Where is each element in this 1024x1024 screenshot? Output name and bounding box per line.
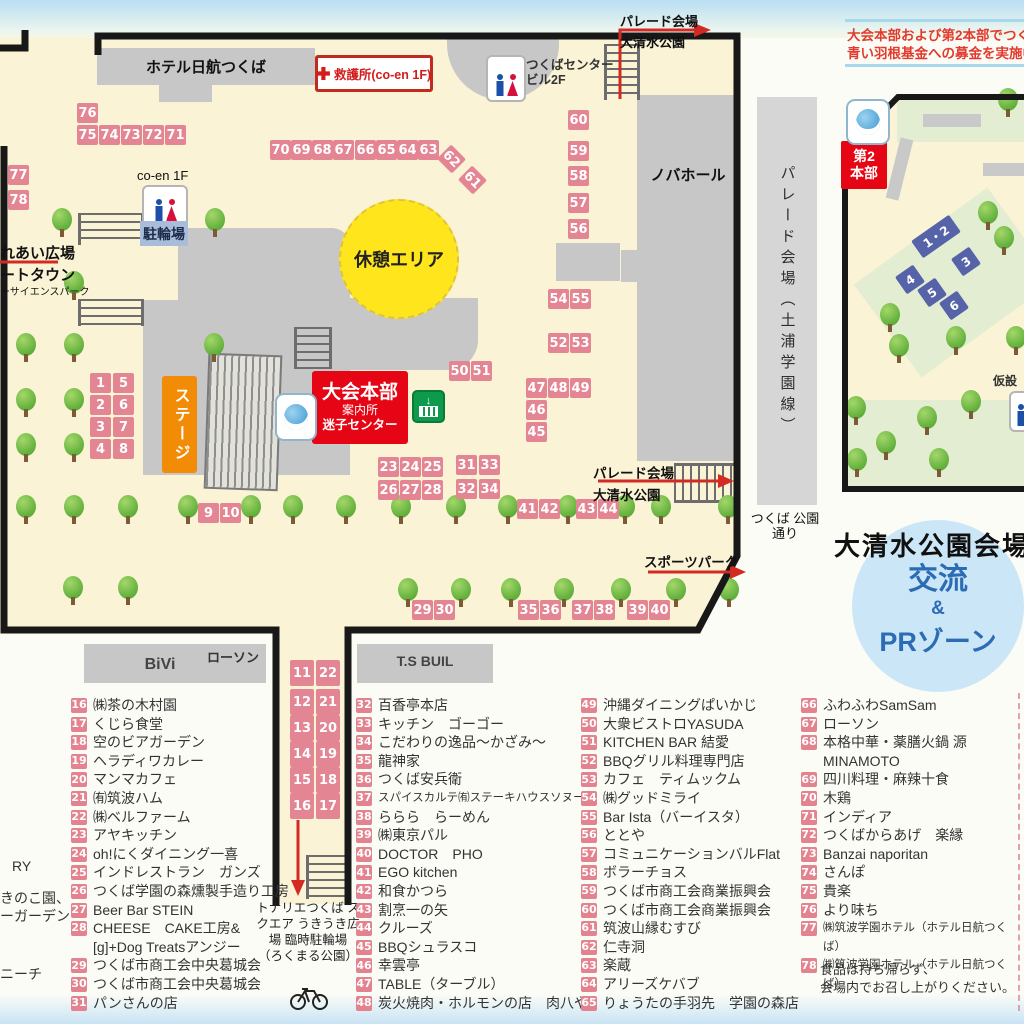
legend-item-name: 和食かつら (378, 882, 448, 901)
legend-item-number: 37 (356, 791, 372, 806)
legend-item-name: ボラーチョス (603, 863, 687, 882)
legend-item-name: りょうたの手羽先 学園の森店 (603, 994, 799, 1013)
lost-child-center-label: 迷子センター (322, 418, 397, 432)
booth-70: 70 (270, 140, 291, 160)
legend-item: 37スパイスカルテ㈲ステーキハウスソヌーテ (356, 789, 596, 808)
legend-item-number: 47 (356, 977, 372, 992)
legend-item-name: 百香亭本店 (378, 696, 448, 715)
booth-64: 64 (397, 140, 418, 160)
legend-item-name: ㈱茶の木村園 (93, 696, 177, 715)
note-rule (845, 64, 1024, 67)
legend-item-name: 仁寺洞 (603, 938, 645, 957)
legend-item-number: 22 (71, 810, 87, 825)
legend-item: 38ららら らーめん (356, 808, 596, 827)
legend-item-number: 65 (581, 996, 597, 1011)
legend-item: 77㈱筑波学園ホテル（ホテル日航つくば） (801, 919, 1024, 956)
booth-42: 42 (539, 499, 560, 519)
legend-item-name: つくば市商工会中央葛城会 (93, 956, 261, 975)
booth-10: 10 (220, 503, 241, 523)
legend-item-name: ㈱グッドミライ (603, 789, 701, 808)
legend-item: 66ふわふわSamSam (801, 696, 1024, 715)
booth-48: 48 (548, 378, 569, 398)
legend-item-number: 38 (356, 810, 372, 825)
booth-56: 56 (568, 219, 589, 239)
booth-28: 28 (422, 480, 443, 500)
booth-39: 39 (627, 600, 648, 620)
rest-area: 休憩エリア (339, 199, 459, 319)
oshimizu-venue-title: 大清水公園会場 (834, 526, 1024, 563)
booth-76: 76 (77, 103, 98, 123)
booth-55: 55 (570, 289, 591, 309)
legend-item-number: 68 (801, 735, 817, 750)
legend-item-name: アヤキッチン (93, 826, 177, 845)
down-arrow-icon: ↓ (426, 396, 432, 406)
legend-item-number: 50 (581, 717, 597, 732)
booth-67: 67 (333, 140, 354, 160)
legend-item-number: 49 (581, 698, 597, 713)
hotel-label: ホテル日航つくば (97, 56, 315, 77)
tree-icon (719, 578, 739, 607)
booth-73: 73 (121, 125, 142, 145)
tree-icon (64, 388, 84, 417)
tree-icon (917, 406, 937, 435)
legend-item-name: ㈱ベルファーム (93, 808, 191, 827)
legend-item: 25インドレストラン ガンズ (71, 863, 289, 882)
science-park-label: ーサイエンスパーク (0, 283, 90, 298)
booth-12: 12 (290, 689, 314, 715)
legend-item-number: 63 (581, 958, 597, 973)
lawson-map-label: ローソン (207, 647, 259, 666)
booth-29: 29 (412, 600, 433, 620)
mascot-icon (275, 393, 317, 441)
legend-item-name: ふわふわSamSam (823, 696, 937, 715)
sports-park-label: スポーツパーク (644, 551, 738, 571)
legend-item-name: つくば学園の森燻製手造り工房 (93, 882, 289, 901)
booth-63: 63 (418, 140, 439, 160)
legend-item: 59つくば市商工会商業振興会 (581, 882, 799, 901)
stairs-icon (294, 327, 332, 369)
mascot-icon (846, 99, 890, 145)
booth-20: 20 (316, 715, 340, 741)
oshimizu-park-label: 大清水公園 (620, 32, 685, 51)
legend-item: 30つくば市商工会中央葛城会 (71, 975, 289, 994)
booth-9: 9 (198, 503, 219, 523)
legend-item: 44クルーズ (356, 919, 596, 938)
tree-icon (205, 208, 225, 237)
legend-item: 64アリーズケバブ (581, 975, 799, 994)
small-building (556, 243, 620, 281)
booth-46: 46 (526, 400, 547, 420)
legend-item-number: 73 (801, 847, 817, 862)
legend-item: 62仁寺洞 (581, 938, 799, 957)
legend-item-number: 69 (801, 772, 817, 787)
donation-note-line1: 大会本部および第2本部でつく (847, 24, 1024, 44)
hq-info-label: 案内所 (342, 404, 378, 418)
novahall-building (637, 95, 737, 461)
legend-item-number: 71 (801, 810, 817, 825)
toilet-icon (1009, 391, 1024, 432)
legend-item: 16㈱茶の木村園 (71, 696, 289, 715)
legend-column: 66ふわふわSamSam67ローソン68本格中華・薬膳火鍋 源MINAMOTO6… (801, 696, 1024, 994)
tree-icon (558, 495, 578, 524)
tree-icon (946, 326, 966, 355)
legend-item: 42和食かつら (356, 882, 596, 901)
legend-item-name: ㈱筑波学園ホテル（ホテル日航つくば） (823, 919, 1024, 956)
legend-item-number: 51 (581, 735, 597, 750)
legend-item: 20マンマカフェ (71, 770, 289, 789)
red-cross-icon (317, 67, 330, 80)
legend-item-number: 61 (581, 921, 597, 936)
booth-18: 18 (316, 767, 340, 793)
mascot-face (284, 404, 308, 430)
legend-item-number: 64 (581, 977, 597, 992)
tree-icon (204, 333, 224, 362)
tree-icon (336, 495, 356, 524)
legend-item-number: 53 (581, 772, 597, 787)
legend-item: 76より味ち (801, 901, 1024, 920)
elevator-icon: ↓ (412, 390, 445, 423)
booth-72: 72 (143, 125, 164, 145)
legend-item-number: 66 (801, 698, 817, 713)
legend-item-name: つくば市商工会商業振興会 (603, 901, 771, 920)
legend-item-name: Beer Bar STEIN (93, 901, 193, 920)
legend-cutoff-fragment: ーガーデン (0, 906, 70, 926)
booth-22: 22 (316, 660, 340, 686)
booth-3: 3 (90, 417, 111, 437)
legend-item: 60つくば市商工会商業振興会 (581, 901, 799, 920)
legend-cutoff-fragment: ニーチ (0, 964, 42, 984)
legend-item-name: つくば市商工会商業振興会 (603, 882, 771, 901)
legend-item: 68本格中華・薬膳火鍋 源MINAMOTO (801, 733, 1024, 770)
legend-item: 32百香亭本店 (356, 696, 596, 715)
legend-item-name: 木鶏 (823, 789, 851, 808)
booth-14: 14 (290, 741, 314, 767)
legend-item-name: Banzai naporitan (823, 845, 928, 864)
booth-33: 33 (479, 455, 500, 475)
stairs-icon (78, 299, 144, 326)
legend-item: 39㈱東京パル (356, 826, 596, 845)
legend-item: 51KITCHEN BAR 結愛 (581, 733, 799, 752)
legend-item-number: 33 (356, 717, 372, 732)
booth-71: 71 (165, 125, 186, 145)
booth-21: 21 (316, 689, 340, 715)
legend-item-number: 24 (71, 847, 87, 862)
booth-16: 16 (290, 793, 314, 819)
legend-item-name: 龍神家 (378, 752, 420, 771)
booth-57: 57 (568, 193, 589, 213)
tree-icon (876, 431, 896, 460)
oshimizu-park-label: 大清水公園 (593, 484, 661, 504)
booth-52: 52 (548, 333, 569, 353)
legend-item: 70木鶏 (801, 789, 1024, 808)
legend-item: 17くじら食堂 (71, 715, 289, 734)
tree-icon (52, 208, 72, 237)
legend-item-name: さんぽ (823, 863, 865, 882)
legend-item-number: 74 (801, 865, 817, 880)
booth-77: 77 (8, 165, 29, 185)
legend-item-name: EGO kitchen (378, 863, 457, 882)
legend-item: 69四川料理・麻辣十食 (801, 770, 1024, 789)
booth-69: 69 (291, 140, 312, 160)
legend-item-name: 割烹一の矢 (378, 901, 448, 920)
booth-5: 5 (113, 373, 134, 393)
man-icon (154, 199, 163, 222)
legend-item-number: 16 (71, 698, 87, 713)
legend-item-number: 40 (356, 847, 372, 862)
parade-road-label: パレード会場（土浦学園線） (777, 165, 798, 438)
tree-icon (446, 495, 466, 524)
legend-item-name: ヘラディワカレー (93, 752, 204, 771)
legend-item-name: 貴楽 (823, 882, 851, 901)
booth-68: 68 (312, 140, 333, 160)
hq2-label-1: 第2 (853, 148, 875, 166)
legend-item-number: 52 (581, 754, 597, 769)
legend-item: 49沖縄ダイニングぱいかじ (581, 696, 799, 715)
legend-item-number: 18 (71, 735, 87, 750)
legend-item-name: マンマカフェ (93, 770, 177, 789)
legend-item-number: 27 (71, 903, 87, 918)
legend-item-number: 39 (356, 828, 372, 843)
booth-40: 40 (649, 600, 670, 620)
legend-cutoff-fragment: RY (12, 858, 31, 874)
legend-item-number: 17 (71, 717, 87, 732)
park-street-label: つくば 公園通り (750, 511, 820, 541)
legend-item-number: 26 (71, 884, 87, 899)
rest-area-label: 休憩エリア (354, 246, 444, 272)
center-building-label-1: つくばセンター (526, 58, 614, 72)
legend-item-number: 31 (71, 996, 87, 1011)
legend-item-number: 20 (71, 772, 87, 787)
tree-icon (63, 576, 83, 605)
legend-item-name: 本格中華・薬膳火鍋 源MINAMOTO (823, 733, 1024, 770)
tree-icon (961, 390, 981, 419)
legend-item-number: 70 (801, 791, 817, 806)
legend-item-number: 78 (801, 958, 817, 973)
legend-item: 35龍神家 (356, 752, 596, 771)
legend-item: 21㈲筑波ハム (71, 789, 289, 808)
legend-item-number: 42 (356, 884, 372, 899)
legend-item-number: 62 (581, 940, 597, 955)
legend-item: 72つくばからあげ 楽縁 (801, 826, 1024, 845)
fureai-plaza-label: れあい広場 (0, 242, 75, 263)
legend-item-name: コミュニケーションバルFlat (603, 845, 780, 864)
tree-icon (16, 495, 36, 524)
legend-item-number: 30 (71, 977, 87, 992)
legend-item-number: 48 (356, 996, 372, 1011)
woman-icon (167, 199, 176, 222)
booth-75: 75 (77, 125, 98, 145)
ts-buil-label: T.S BUIL (357, 653, 493, 669)
booth-23: 23 (378, 457, 399, 477)
legend-item: 27Beer Bar STEIN (71, 901, 289, 920)
tree-icon (847, 448, 867, 477)
booth-24: 24 (400, 457, 421, 477)
legend-item-name: スパイスカルテ㈲ステーキハウスソヌーテ (378, 789, 596, 808)
legend-item: 29つくば市商工会中央葛城会 (71, 956, 289, 975)
booth-66: 66 (355, 140, 376, 160)
stairs-icon (306, 855, 348, 899)
note-rule (845, 19, 1024, 22)
booth-4: 4 (90, 439, 111, 459)
legend-item: 54㈱グッドミライ (581, 789, 799, 808)
legend-item-name: クルーズ (378, 919, 433, 938)
tree-icon (64, 333, 84, 362)
booth-60: 60 (568, 110, 589, 130)
toilet-icon (486, 55, 526, 102)
tree-icon (118, 576, 138, 605)
legend-item: 57コミュニケーションバルFlat (581, 845, 799, 864)
legend-item-number: 44 (356, 921, 372, 936)
legend-item-number: 23 (71, 828, 87, 843)
tree-icon (16, 333, 36, 362)
legend-item-name: DOCTOR PHO (378, 845, 483, 864)
booth-31: 31 (456, 455, 477, 475)
legend-item: 33キッチン ゴーゴー (356, 715, 596, 734)
legend-item-number: 29 (71, 958, 87, 973)
legend-item: 48炭火焼肉・ホルモンの店 肉八や (356, 994, 596, 1013)
bicycle-icon (289, 983, 329, 1011)
cutoff-dashed-line (1018, 693, 1020, 1011)
legend-item-number: 36 (356, 772, 372, 787)
parade-road: パレード会場（土浦学園線） (757, 97, 817, 505)
man-icon (1017, 404, 1024, 427)
legend-item: 19ヘラディワカレー (71, 752, 289, 771)
legend-item-number: 59 (581, 884, 597, 899)
booth-41: 41 (517, 499, 538, 519)
hq2-label-2: 本部 (850, 165, 878, 183)
booth-78: 78 (8, 190, 29, 210)
legend-item-name: インドレストラン ガンズ (93, 863, 261, 882)
legend-item-number: 72 (801, 828, 817, 843)
legend-item-name: CHEESE CAKE工房& [g]+Dog Treatsアンジー (93, 919, 241, 956)
legend-item-number: 75 (801, 884, 817, 899)
legend-item: 58ボラーチョス (581, 863, 799, 882)
booth-7: 7 (113, 417, 134, 437)
legend-item: 50大衆ビストロYASUDA (581, 715, 799, 734)
legend-item-name: つくばからあげ 楽縁 (823, 826, 963, 845)
legend-item: 43割烹一の矢 (356, 901, 596, 920)
booth-47: 47 (526, 378, 547, 398)
legend-item-number: 34 (356, 735, 372, 750)
hq2-box: 第2 本部 (841, 141, 887, 189)
legend-item: 52BBQグリル料理専門店 (581, 752, 799, 771)
tree-icon (118, 495, 138, 524)
legend-item-name: TABLE（ターブル） (378, 975, 504, 994)
legend-item-number: 21 (71, 791, 87, 806)
legend-item: 75貴楽 (801, 882, 1024, 901)
legend-item-name: 沖縄ダイニングぱいかじ (603, 696, 757, 715)
legend-item-name: ららら らーめん (378, 808, 490, 827)
legend-item: 61筑波山縁むすび (581, 919, 799, 938)
legend-item-number: 43 (356, 903, 372, 918)
center-building-label-2: ビル2F (526, 73, 566, 87)
legend-item: 31パンさんの店 (71, 994, 289, 1013)
tree-icon (994, 226, 1014, 255)
legend-item-name: ㈲筑波ハム (93, 789, 163, 808)
booth-38: 38 (594, 600, 615, 620)
booth-11: 11 (290, 660, 314, 686)
legend-item-number: 32 (356, 698, 372, 713)
tree-icon (718, 495, 738, 524)
legend-item-number: 55 (581, 810, 597, 825)
stairs-icon (78, 213, 144, 245)
legend-item-name: 幸雲亭 (378, 956, 420, 975)
tree-icon (929, 448, 949, 477)
booth-35: 35 (518, 600, 539, 620)
first-aid-box: 救護所(co-en 1F) (315, 55, 433, 92)
legend-item: 47TABLE（ターブル） (356, 975, 596, 994)
legend-item-name: Bar Ista（バーイスタ） (603, 808, 749, 827)
tree-icon (889, 334, 909, 363)
legend-item-name: ローソン (823, 715, 879, 734)
stage: ステージ (162, 376, 197, 473)
booth-49: 49 (570, 378, 591, 398)
legend-item-number: 28 (71, 921, 87, 936)
legend-item: 22㈱ベルファーム (71, 808, 289, 827)
legend-item-number: 25 (71, 865, 87, 880)
town-label: ートタウン (0, 264, 75, 285)
legend-item: 71インディア (801, 808, 1024, 827)
booth-30: 30 (434, 600, 455, 620)
center-building-toilet-label: つくばセンタービル2F (526, 58, 621, 88)
legend-item-number: 60 (581, 903, 597, 918)
hq-label: 大会本部 (322, 382, 398, 404)
legend-item: 53カフェ ティムックム (581, 770, 799, 789)
booth-65: 65 (376, 140, 397, 160)
legend-item-number: 57 (581, 847, 597, 862)
legend-item-number: 54 (581, 791, 597, 806)
legend-item: 63楽蔵 (581, 956, 799, 975)
legend-item-name: BBQシュラスコ (378, 938, 477, 957)
legend-item-name: 大衆ビストロYASUDA (603, 715, 744, 734)
path-paving (983, 163, 1024, 176)
stage-label: ステージ (168, 387, 192, 463)
legend-item-number: 19 (71, 754, 87, 769)
booth-19: 19 (316, 741, 340, 767)
legend-item-name: くじら食堂 (93, 715, 163, 734)
parade-exit-label: パレード会場 (593, 462, 674, 482)
path-paving (923, 114, 981, 127)
novahall-label: ノバホール (642, 164, 734, 185)
legend-item-number: 76 (801, 903, 817, 918)
tree-icon (880, 303, 900, 332)
booth-36: 36 (540, 600, 561, 620)
legend-item-name: パンさんの店 (93, 994, 178, 1013)
legend-item: 23アヤキッチン (71, 826, 289, 845)
booth-1: 1 (90, 373, 111, 393)
legend-item-name: 四川料理・麻辣十食 (823, 770, 949, 789)
legend-item: 55Bar Ista（バーイスタ） (581, 808, 799, 827)
tree-icon (998, 88, 1018, 117)
legend-item: 45BBQシュラスコ (356, 938, 596, 957)
legend-item-name: キッチン ゴーゴー (378, 715, 504, 734)
bicycle-parking-label: 駐輪場 (143, 224, 185, 244)
legend-item: 56ととや (581, 826, 799, 845)
legend-item-number: 56 (581, 828, 597, 843)
tree-icon (1006, 326, 1024, 355)
tree-icon (283, 495, 303, 524)
tree-icon (16, 433, 36, 462)
booth-34: 34 (479, 479, 500, 499)
legend-item-name: KITCHEN BAR 結愛 (603, 733, 729, 752)
pr-zone-line3: PRゾーン (879, 620, 996, 659)
tree-icon (498, 495, 518, 524)
legend-item: 26つくば学園の森燻製手造り工房 (71, 882, 289, 901)
legend-item-name: 楽蔵 (603, 956, 631, 975)
legend-item-name: ととや (603, 826, 645, 845)
booth-27: 27 (400, 480, 421, 500)
legend-item-number: 41 (356, 865, 372, 880)
